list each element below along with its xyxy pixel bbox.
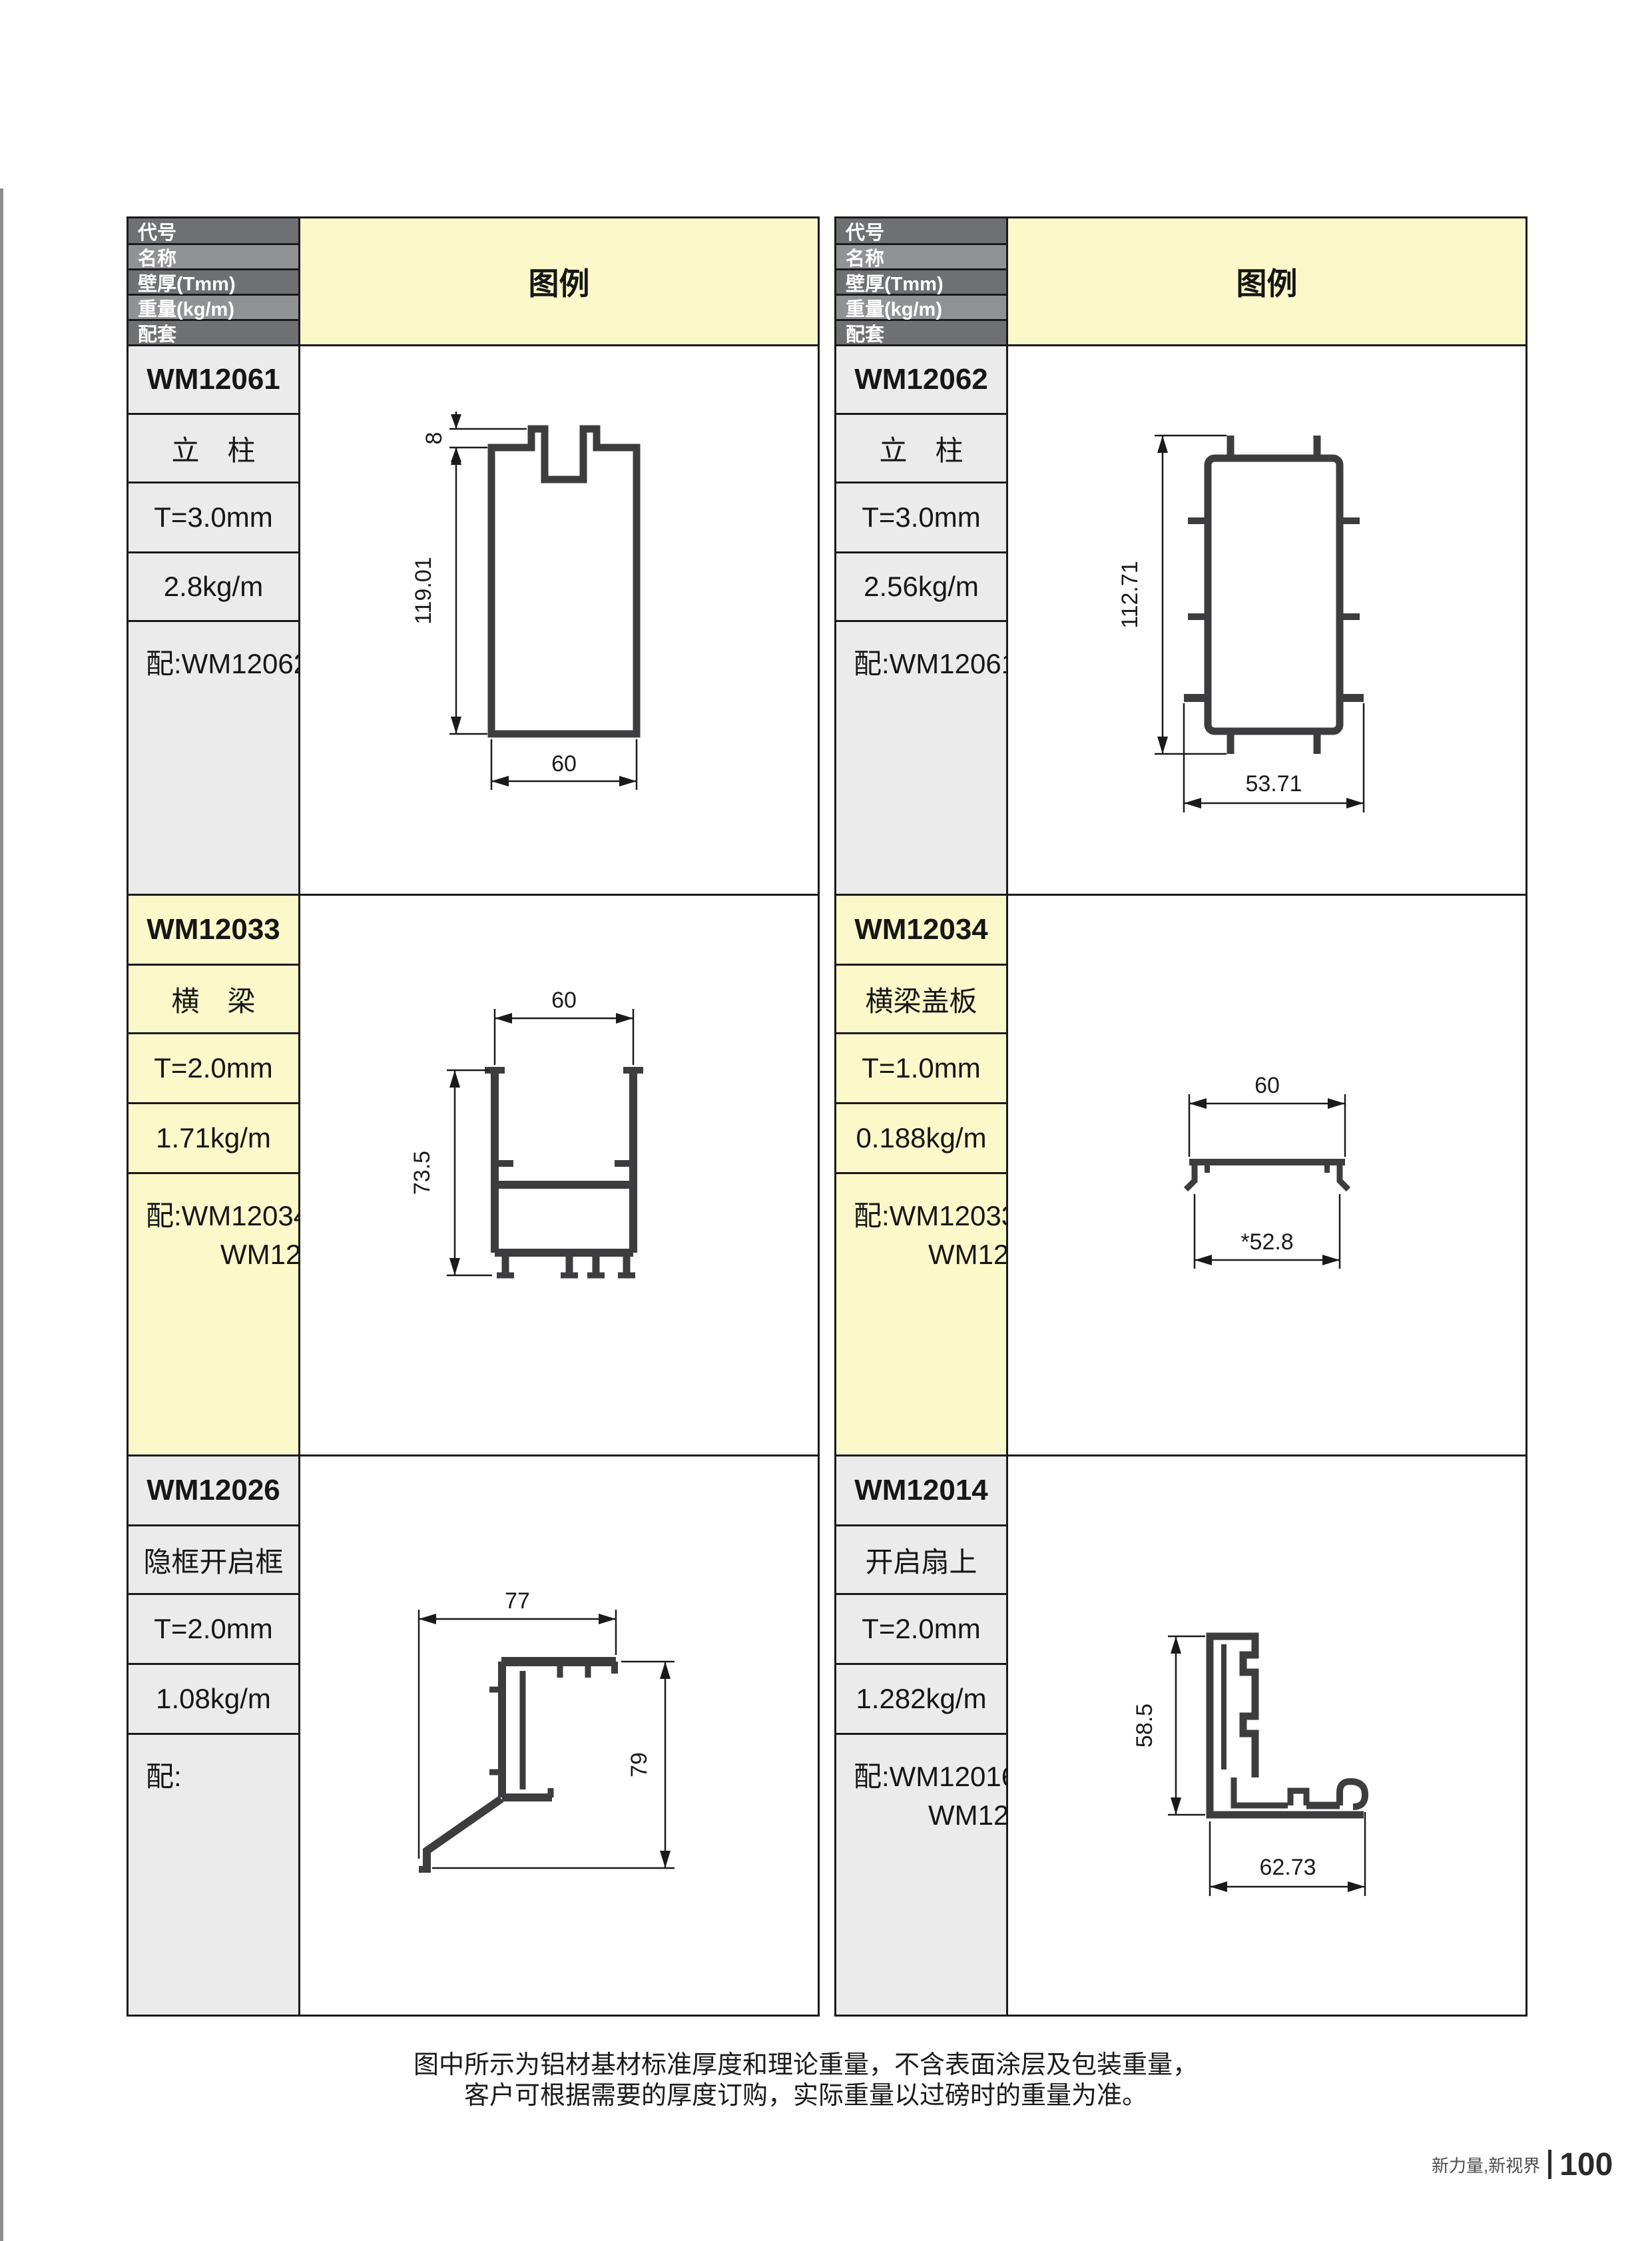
profile-thickness: T=3.0mm [129, 483, 298, 551]
dim-top: 8 [421, 432, 447, 445]
mate-line1: 配:WM12062 [146, 645, 309, 683]
profile-drawing-wm12034: 60 *52.8 [1008, 896, 1525, 1454]
profile-mate: 配:WM12034 WM12037 [129, 1174, 298, 1454]
diagram-cell-wm12061: 8 119.01 60 [300, 346, 818, 894]
dim-width: 60 [1254, 1073, 1280, 1098]
page-number: 100 [1559, 2146, 1613, 2183]
dim-height: 58.5 [1132, 1704, 1157, 1748]
profile-code: WM12062 [836, 346, 1006, 413]
profile-mate: 配: [129, 1735, 298, 2015]
header-label-weight: 重量(kg/m) [129, 296, 298, 319]
profile-table-left: 代号 名称 壁厚(Tmm) 重量(kg/m) 配套 图例 WM12061 立 柱… [127, 216, 820, 2017]
footer-note-line2: 客户可根据需要的厚度订购，实际重量以过磅时的重量为准。 [0, 2081, 1611, 2111]
footer-divider [1548, 2150, 1551, 2179]
profile-code: WM12034 [836, 896, 1006, 964]
profile-weight: 2.56kg/m [836, 553, 1006, 620]
dim-height: 112.71 [1117, 561, 1143, 628]
diagram-cell-wm12034: 60 *52.8 [1008, 896, 1525, 1454]
header-label-thickness: 壁厚(Tmm) [129, 270, 298, 294]
profile-mate: 配:WM12033 WM12053 [836, 1174, 1006, 1454]
header-label-name: 名称 [129, 245, 298, 268]
profile-code: WM12033 [129, 896, 298, 964]
page-left-crop-mark [0, 188, 3, 2241]
profile-drawing-wm12061: 8 119.01 60 [300, 346, 818, 894]
profile-name: 开启扇上 [836, 1526, 1006, 1593]
dim-width: 60 [551, 751, 577, 777]
profile-weight: 2.8kg/m [129, 553, 298, 620]
profile-drawing-wm12062: 112.71 53.71 [1008, 346, 1525, 894]
profile-drawing-wm12026: 77 79 [300, 1456, 818, 2015]
footer-note: 图中所示为铝材基材标准厚度和理论重量，不含表面涂层及包装重量， 客户可根据需要的… [0, 2050, 1611, 2111]
profile-thickness: T=2.0mm [836, 1595, 1006, 1663]
diagram-cell-wm12062: 112.71 53.71 [1008, 346, 1525, 894]
profile-mate: 配:WM12062 [129, 622, 298, 894]
header-label-weight: 重量(kg/m) [836, 296, 1006, 319]
profile-name: 立 柱 [836, 415, 1006, 481]
profile-code: WM12061 [129, 346, 298, 413]
dim-height: 73.5 [410, 1151, 435, 1195]
header-label-name: 名称 [836, 245, 1006, 268]
dim-inner-width: *52.8 [1240, 1229, 1293, 1255]
profile-name: 横梁盖板 [836, 966, 1006, 1032]
mate-line1: 配:WM12016 [854, 1758, 1017, 1796]
mate-line1: 配: [146, 1758, 182, 1796]
page-footer: 新力量,新视界 100 [1432, 2146, 1613, 2183]
profile-table-right: 代号 名称 壁厚(Tmm) 重量(kg/m) 配套 图例 WM12062 立 柱… [834, 216, 1527, 2017]
profile-name: 立 柱 [129, 415, 298, 481]
diagram-cell-wm12026: 77 79 [300, 1456, 818, 2015]
profile-weight: 0.188kg/m [836, 1104, 1006, 1172]
profile-weight: 1.282kg/m [836, 1665, 1006, 1733]
profile-thickness: T=2.0mm [129, 1595, 298, 1663]
profile-mate: 配:WM12061 [836, 622, 1006, 894]
mate-line1: 配:WM12034 [146, 1197, 309, 1235]
header-label-code: 代号 [836, 218, 1006, 243]
header-label-mate: 配套 [836, 321, 1006, 344]
profile-thickness: T=2.0mm [129, 1034, 298, 1102]
profile-weight: 1.08kg/m [129, 1665, 298, 1733]
header-label-mate: 配套 [129, 321, 298, 344]
legend-header: 图例 [300, 218, 818, 344]
header-label-thickness: 壁厚(Tmm) [836, 270, 1006, 294]
profile-thickness: T=3.0mm [836, 483, 1006, 551]
profile-thickness: T=1.0mm [836, 1034, 1006, 1102]
profile-drawing-wm12014: 58.5 62.73 [1008, 1456, 1525, 2015]
profile-drawing-wm12033: 60 73.5 [300, 896, 818, 1454]
profile-weight: 1.71kg/m [129, 1104, 298, 1172]
footer-note-line1: 图中所示为铝材基材标准厚度和理论重量，不含表面涂层及包装重量， [0, 2050, 1611, 2081]
mate-line1: 配:WM12033 [854, 1197, 1017, 1235]
brand-slogan: 新力量,新视界 [1432, 2152, 1540, 2177]
mate-line1: 配:WM12061 [854, 645, 1017, 683]
profile-name: 隐框开启框 [129, 1526, 298, 1593]
profile-name: 横 梁 [129, 966, 298, 1032]
profile-code: WM12026 [129, 1456, 298, 1524]
dim-width: 62.73 [1259, 1855, 1316, 1880]
diagram-cell-wm12014: 58.5 62.73 [1008, 1456, 1525, 2015]
dim-height: 79 [627, 1752, 652, 1777]
profile-code: WM12014 [836, 1456, 1006, 1524]
catalog-page: 代号 名称 壁厚(Tmm) 重量(kg/m) 配套 图例 WM12061 立 柱… [0, 0, 1652, 2241]
dim-height: 119.01 [411, 557, 436, 624]
diagram-cell-wm12033: 60 73.5 [300, 896, 818, 1454]
header-label-code: 代号 [129, 218, 298, 243]
dim-width: 77 [505, 1588, 530, 1614]
dim-width: 60 [551, 988, 577, 1013]
dim-width: 53.71 [1245, 771, 1302, 797]
profile-mate: 配:WM12016 WM12019 [836, 1735, 1006, 2015]
legend-header: 图例 [1008, 218, 1525, 344]
